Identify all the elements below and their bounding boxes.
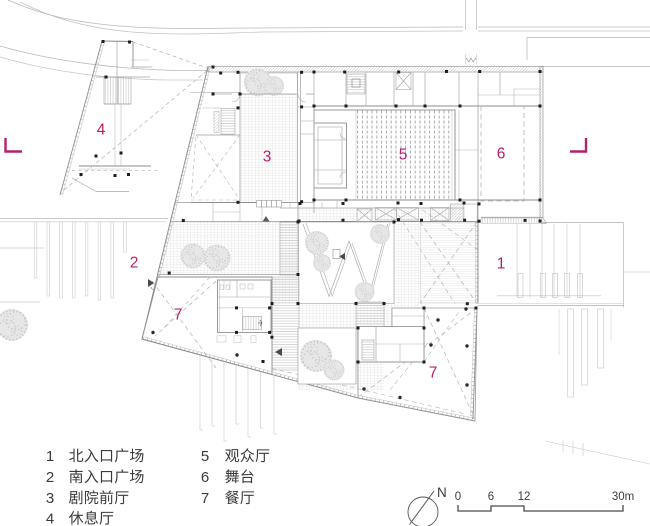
svg-text:4: 4 — [46, 511, 54, 526]
svg-text:5: 5 — [201, 448, 209, 465]
svg-text:1: 1 — [497, 256, 506, 273]
svg-text:12: 12 — [518, 491, 531, 503]
svg-text:0: 0 — [455, 491, 461, 503]
svg-text:6: 6 — [201, 469, 209, 486]
svg-text:4: 4 — [97, 122, 106, 139]
svg-text:3: 3 — [263, 149, 272, 166]
svg-text:7: 7 — [201, 490, 209, 507]
svg-text:N: N — [437, 485, 447, 500]
svg-text:1: 1 — [46, 448, 54, 465]
svg-text:7: 7 — [174, 307, 183, 324]
svg-text:7: 7 — [429, 365, 438, 382]
svg-text:5: 5 — [399, 147, 408, 164]
svg-text:2: 2 — [46, 469, 54, 486]
svg-text:6: 6 — [488, 491, 494, 503]
svg-text:30m: 30m — [612, 491, 634, 503]
svg-text:6: 6 — [497, 146, 506, 163]
svg-text:3: 3 — [46, 490, 54, 507]
svg-text:2: 2 — [130, 255, 139, 272]
